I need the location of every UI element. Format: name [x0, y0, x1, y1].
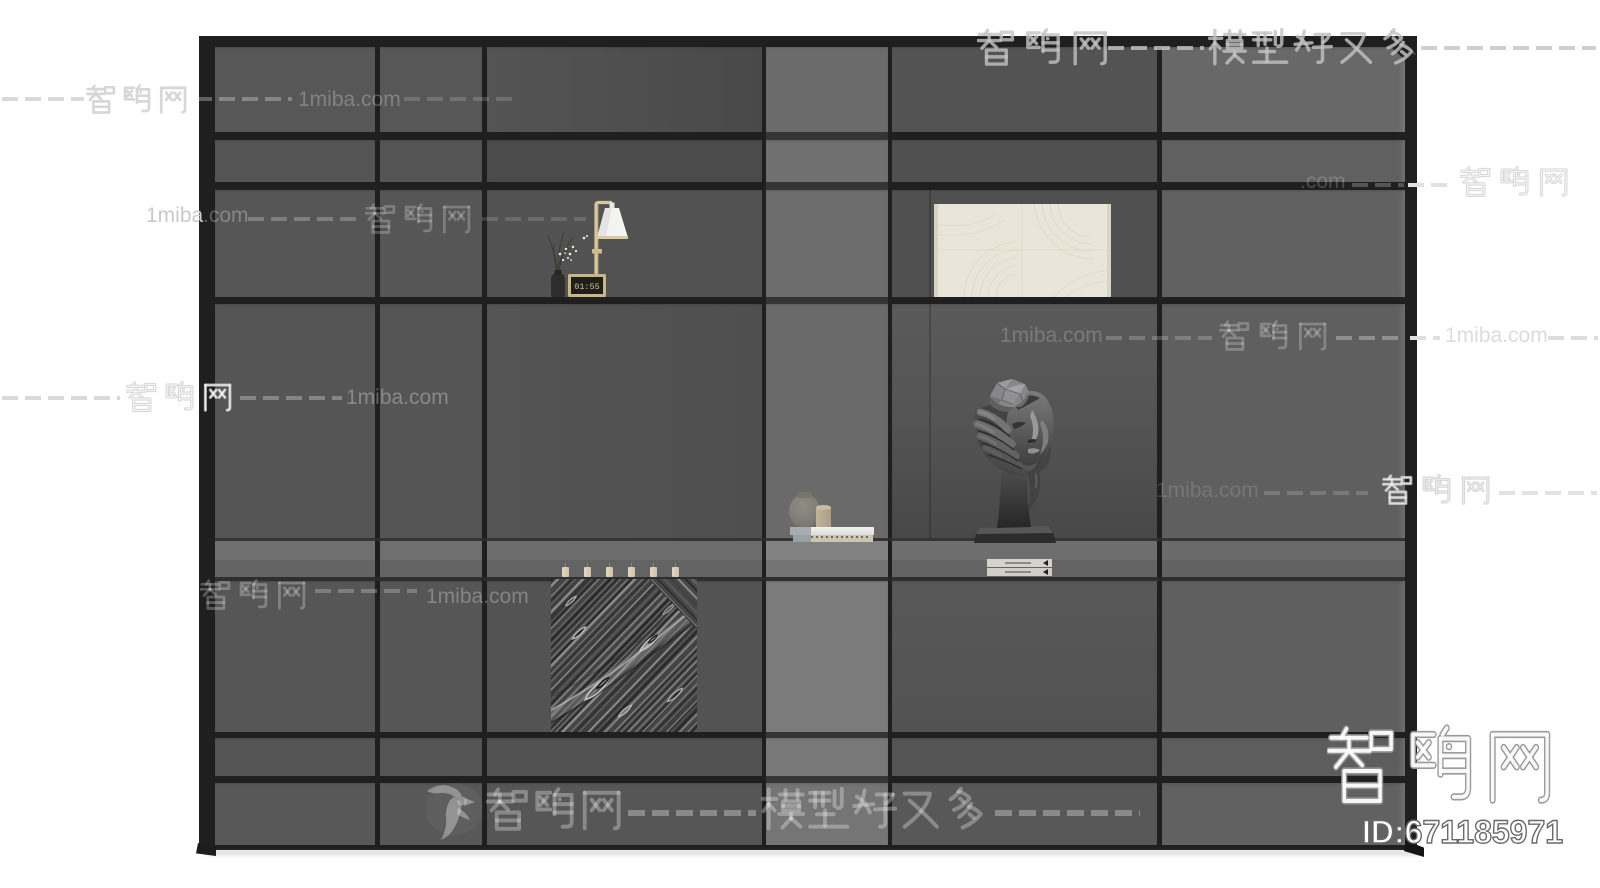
- svg-text:01:55: 01:55: [574, 282, 600, 292]
